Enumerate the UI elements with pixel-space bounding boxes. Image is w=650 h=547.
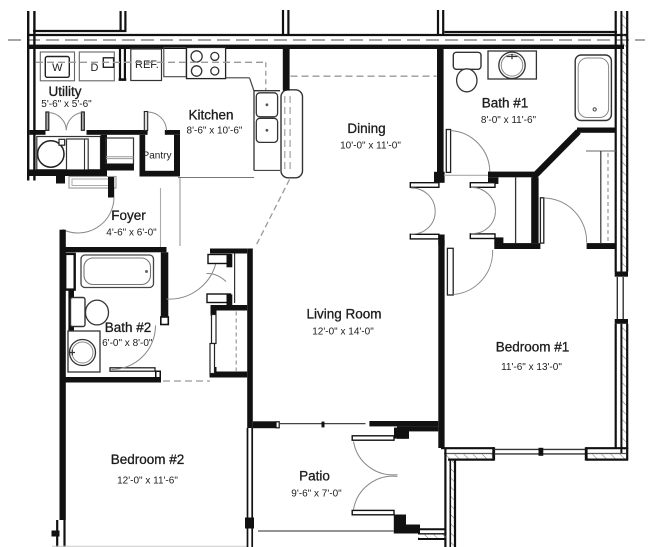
svg-text:8'-0" x 11'-6": 8'-0" x 11'-6" — [481, 115, 537, 126]
svg-text:6'-0" x 8'-0": 6'-0" x 8'-0" — [102, 338, 153, 349]
svg-text:10'-0" x 11'-0": 10'-0" x 11'-0" — [340, 141, 401, 152]
svg-text:REF.: REF. — [135, 59, 159, 71]
svg-text:Bath #1: Bath #1 — [482, 96, 529, 111]
svg-text:12'-0" x 14'-0": 12'-0" x 14'-0" — [312, 327, 374, 338]
svg-text:8'-6" x 10'-6": 8'-6" x 10'-6" — [187, 126, 243, 137]
svg-text:Dining: Dining — [347, 121, 385, 136]
svg-text:Pantry: Pantry — [143, 150, 172, 161]
svg-text:Patio: Patio — [299, 469, 330, 484]
svg-text:11'-6" x 13'-0": 11'-6" x 13'-0" — [501, 362, 562, 373]
svg-text:4'-6" x 6'-0": 4'-6" x 6'-0" — [106, 227, 157, 238]
svg-text:Bath #2: Bath #2 — [105, 320, 152, 335]
svg-text:12'-0" x 11'-6": 12'-0" x 11'-6" — [117, 476, 178, 487]
svg-text:9'-6" x 7'-0": 9'-6" x 7'-0" — [291, 489, 342, 500]
svg-text:5'-6" x 5'-6": 5'-6" x 5'-6" — [41, 99, 92, 110]
svg-text:Bedroom #2: Bedroom #2 — [111, 452, 185, 467]
svg-text:Living Room: Living Room — [306, 307, 381, 322]
svg-text:Foyer: Foyer — [111, 208, 146, 223]
svg-text:Bedroom #1: Bedroom #1 — [496, 340, 570, 355]
svg-text:W: W — [52, 62, 63, 74]
svg-text:Kitchen: Kitchen — [188, 108, 233, 123]
svg-text:D: D — [91, 62, 99, 74]
svg-text:Utility: Utility — [49, 84, 82, 99]
